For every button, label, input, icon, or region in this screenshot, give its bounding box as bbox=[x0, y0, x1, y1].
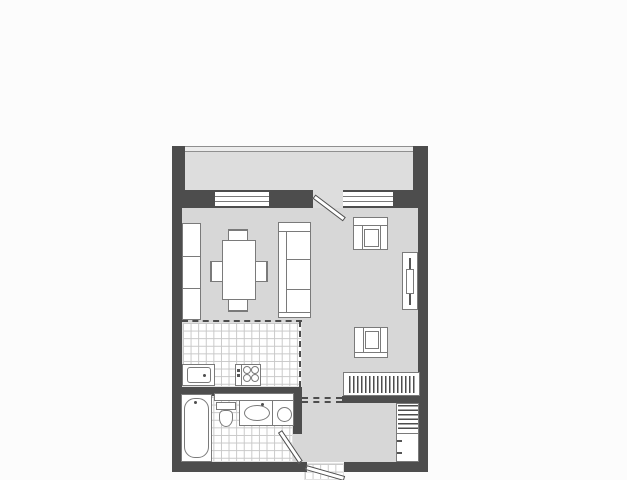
sofa-cushion-divider bbox=[286, 259, 311, 260]
dining-chair-south bbox=[228, 299, 248, 312]
vanity-divider-line bbox=[272, 400, 273, 426]
burner bbox=[243, 366, 251, 374]
armchair-north bbox=[353, 217, 388, 250]
armchair-seat bbox=[364, 229, 379, 247]
east-wall bbox=[418, 190, 428, 472]
round-basin bbox=[277, 407, 292, 422]
balcony-floor bbox=[185, 151, 413, 191]
south-wall-left bbox=[172, 462, 307, 472]
window-right bbox=[343, 192, 393, 206]
hall-wall bbox=[342, 396, 420, 403]
floor-plan bbox=[0, 0, 627, 480]
window-left bbox=[215, 192, 269, 206]
oval-basin bbox=[244, 405, 270, 421]
wardrobe-with-hangers bbox=[343, 372, 420, 396]
hall-cabinet bbox=[396, 403, 419, 462]
sofa bbox=[278, 222, 311, 318]
dining-chair-east bbox=[255, 261, 268, 282]
window-pane-line bbox=[215, 196, 269, 197]
bathroom-side-wall bbox=[293, 396, 302, 434]
bathtub-faucet-dot bbox=[194, 401, 197, 404]
kitchen-boundary-dash-v bbox=[299, 321, 301, 387]
tv-body bbox=[406, 269, 414, 294]
burner bbox=[243, 374, 251, 382]
armchair-armrest-line bbox=[363, 328, 364, 352]
balcony-left-wall bbox=[172, 146, 185, 191]
cabinet-handle-tick bbox=[397, 440, 402, 442]
sofa-armrest-line bbox=[279, 312, 310, 313]
cooktop-panel-line bbox=[241, 364, 242, 386]
armchair-backrest-line bbox=[354, 225, 387, 226]
cabinet-handle-tick bbox=[397, 452, 402, 454]
toilet-tank bbox=[216, 402, 236, 410]
shelf-divider bbox=[183, 288, 200, 289]
window-pane-line bbox=[343, 201, 393, 202]
bathtub-inner bbox=[184, 398, 209, 458]
armchair-backrest-line bbox=[355, 352, 387, 353]
balcony-right-wall bbox=[413, 146, 428, 191]
armchair-armrest-line bbox=[380, 225, 381, 250]
burner bbox=[251, 374, 259, 382]
sofa-cushion-divider bbox=[286, 289, 311, 290]
hall-boundary-dash-1 bbox=[302, 397, 342, 399]
armchair-seat bbox=[365, 331, 379, 349]
cooktop-knob bbox=[237, 374, 240, 377]
armchair-armrest-line bbox=[380, 328, 381, 352]
kitchen-faucet-dot bbox=[203, 374, 206, 377]
dining-table bbox=[222, 240, 256, 300]
balcony-railing bbox=[183, 146, 415, 152]
cabinet-divider bbox=[397, 433, 418, 434]
basin-faucet-dot bbox=[261, 403, 264, 406]
kitchen-sink-basin bbox=[187, 367, 211, 383]
hall-boundary-dash-2 bbox=[302, 401, 342, 403]
window-pane-line bbox=[343, 196, 393, 197]
armchair-armrest-line bbox=[362, 225, 363, 250]
shelf-divider bbox=[183, 256, 200, 257]
hanger-rail-hatch bbox=[349, 376, 415, 393]
armchair-south bbox=[354, 327, 388, 358]
burner bbox=[251, 366, 259, 374]
cooktop-knob bbox=[237, 369, 240, 372]
sofa-armrest-line bbox=[279, 231, 310, 232]
cabinet-shelf-hatch bbox=[398, 405, 418, 432]
toilet-bowl bbox=[219, 410, 233, 427]
sofa-backrest-line bbox=[286, 231, 287, 312]
window-pane-line bbox=[215, 201, 269, 202]
shelf-unit bbox=[182, 223, 201, 320]
south-wall-right bbox=[344, 462, 428, 472]
kitchen-boundary-dash-h bbox=[182, 320, 302, 322]
